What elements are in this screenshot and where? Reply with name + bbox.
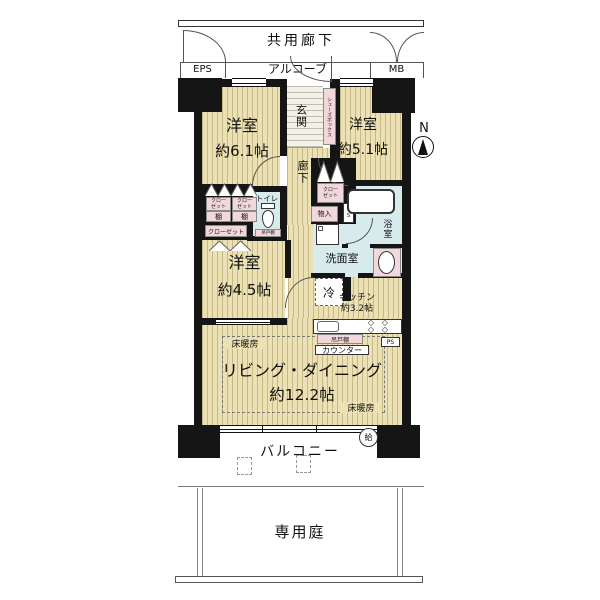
bedroom3-closet: クローゼット — [205, 225, 247, 237]
wall-right — [402, 113, 411, 432]
toilet-label: トイレ — [253, 194, 281, 203]
corridor-outer-wall — [178, 20, 424, 27]
wall-toilet-east — [280, 186, 287, 240]
closet-label-line2: ゼット — [323, 193, 338, 199]
corridor-door-hinge-left — [183, 30, 184, 62]
mb-right-line — [423, 62, 424, 78]
washbasin-icon — [378, 251, 395, 274]
balcony-window-divider-1 — [262, 425, 263, 433]
floor-heating-label-1: 床暖房 — [224, 338, 266, 349]
counter-label: カウンター — [315, 345, 369, 355]
bedroom2-window — [340, 78, 373, 87]
bedroom1-size: 約6.1帖 — [202, 142, 282, 159]
sash-line — [216, 322, 270, 323]
mb-label: MB — [370, 63, 423, 76]
sash-line — [210, 429, 377, 430]
garden-fence-left — [197, 488, 203, 577]
living-name: リビング・ダイニング — [202, 360, 402, 378]
kitchen-label: キッチン — [317, 291, 397, 301]
shelf-2: 棚 — [232, 211, 257, 222]
bedroom3-name: 洋室 — [202, 252, 287, 270]
bedroom1-name: 洋室 — [202, 115, 282, 133]
bedroom3-sliding-door — [216, 319, 270, 325]
folding-door-icon — [205, 183, 257, 196]
burner-mark: ◇ — [378, 327, 392, 334]
bedroom1-closet-1: クロー ゼット — [206, 197, 231, 211]
storage-cabinet: 物入 — [311, 206, 338, 222]
hallway-label: 廊下 — [295, 150, 309, 194]
hallway-closet: クロー ゼット — [317, 183, 344, 203]
kitchen-hanging-cupboard: 吊戸棚 — [317, 334, 363, 344]
bath-label: 浴室 — [380, 210, 394, 248]
stove-burners-icon: ◇◇◇◇ — [364, 320, 392, 333]
bedroom2-name: 洋室 — [330, 116, 396, 132]
balcony-edge-line — [178, 486, 424, 487]
entrance-door-hinge — [331, 56, 332, 82]
balcony-window-divider-2 — [316, 425, 317, 433]
balcony-drain-1 — [237, 457, 252, 475]
toilet-hanging-cupboard: 吊戸棚 — [255, 229, 281, 237]
water-heater-icon: 給 — [359, 428, 378, 447]
shelf-1: 棚 — [206, 211, 231, 222]
kitchen-size-label: 約3.2帖 — [317, 302, 397, 312]
wall-left — [194, 112, 202, 432]
north-label: N — [414, 121, 434, 135]
wall-top-seg1 — [202, 79, 232, 87]
eps-label: EPS — [180, 63, 225, 76]
garden-base-wall — [175, 576, 423, 583]
closet-label-line2: ゼット — [211, 204, 226, 210]
closet-label-line2: ゼット — [237, 204, 252, 210]
wall-top-right-block — [372, 78, 415, 113]
sash-line — [232, 83, 266, 84]
bedroom1-window — [232, 78, 266, 87]
entrance-door-arc — [290, 56, 332, 82]
wall-bath-south-1 — [342, 244, 348, 248]
living-size: 約12.2帖 — [202, 385, 402, 402]
entrance-step-line — [287, 147, 323, 148]
floor-heating-label-2: 床暖房 — [340, 402, 382, 413]
sash-line — [340, 83, 373, 84]
folding-door-icon — [317, 160, 344, 182]
balcony-drain-2 — [296, 455, 311, 473]
bedroom3-size: 約4.5帖 — [202, 281, 287, 298]
washroom-label: 洗面室 — [308, 252, 376, 264]
floor-plan: 共用廊下 EPS アルコーブ MB — [0, 0, 600, 600]
washing-machine-corner-mark — [318, 226, 323, 231]
pipe-space-horizontal: PS — [381, 337, 400, 347]
entrance-label: 玄関 — [293, 94, 308, 138]
garden-fence-right — [397, 488, 403, 577]
burner-mark: ◇ — [364, 327, 378, 334]
living-balcony-window — [210, 425, 377, 433]
compass-needle-icon — [418, 139, 428, 155]
garden-label: 専用庭 — [230, 522, 370, 540]
bedroom2-size: 約5.1帖 — [328, 141, 398, 157]
kitchen-sink-icon — [317, 321, 339, 332]
toilet-tank-icon — [261, 203, 275, 209]
